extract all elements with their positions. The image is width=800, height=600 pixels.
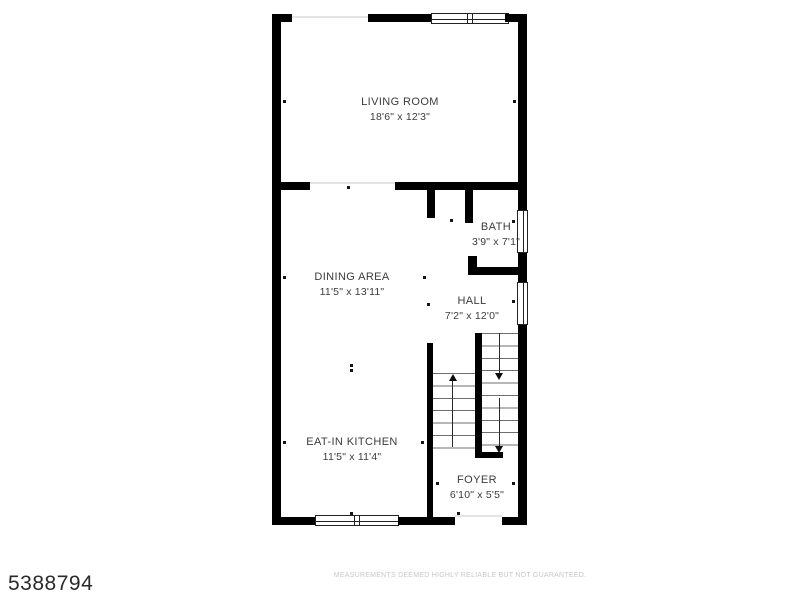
wall-bottom-mid	[398, 517, 455, 525]
wall-hall-corridor-stub	[427, 190, 435, 218]
window-pane-line	[316, 521, 398, 522]
wall-bath-bottom	[468, 267, 520, 275]
measure-tick	[423, 276, 426, 279]
window-pane-line	[523, 283, 524, 324]
window-living-room	[431, 13, 509, 24]
wall-exterior-left	[272, 14, 281, 525]
measure-tick	[283, 441, 286, 444]
room-separator-mark	[350, 364, 353, 367]
measure-tick	[283, 276, 286, 279]
wall-stairs-center	[475, 333, 482, 457]
room-dimensions: 6'10" x 5'5"	[450, 488, 504, 502]
measure-tick	[457, 512, 460, 515]
measure-tick	[513, 100, 516, 103]
room-label-living-room: LIVING ROOM 18'6" x 12'3"	[361, 95, 439, 124]
room-name: FOYER	[450, 473, 504, 487]
room-dimensions: 11'5" x 11'4"	[306, 450, 398, 464]
measure-tick	[421, 441, 424, 444]
mls-number: 5388794	[8, 572, 93, 596]
room-label-eat-in-kitchen: EAT-IN KITCHEN 11'5" x 11'4"	[306, 435, 398, 464]
room-dimensions: 7'2" x 12'0"	[445, 309, 499, 323]
wall-bottom-corner-right	[502, 517, 527, 525]
room-name: BATH	[472, 220, 520, 234]
room-name: LIVING ROOM	[361, 95, 439, 109]
room-dimensions: 18'6" x 12'3"	[361, 110, 439, 124]
room-label-bath: BATH 3'9" x 7'1"	[472, 220, 520, 249]
room-label-dining-area: DINING AREA 11'5" x 13'11"	[314, 270, 389, 299]
window-divider	[467, 14, 468, 23]
room-dimensions: 3'9" x 7'1"	[472, 235, 520, 249]
stairs-down-treads	[482, 333, 518, 454]
window-divider	[472, 14, 473, 23]
measure-tick	[450, 219, 453, 222]
room-dimensions: 11'5" x 13'11"	[314, 285, 389, 299]
window-pane-line	[523, 211, 524, 252]
floorplan-canvas: LIVING ROOM 18'6" x 12'3" BATH 3'9" x 7'…	[0, 0, 800, 600]
stairs-down-arrow-icon	[495, 446, 503, 453]
wall-top-mid	[368, 14, 433, 22]
room-label-hall: HALL 7'2" x 12'0"	[445, 294, 499, 323]
wall-top-corner-left	[272, 14, 292, 22]
measure-tick	[436, 482, 439, 485]
opening-top-left	[292, 16, 368, 18]
opening-living-dining	[310, 182, 395, 184]
measure-tick	[350, 512, 353, 515]
wall-living-dining-left	[281, 182, 310, 190]
stairs-up-treads	[433, 373, 475, 450]
measure-tick	[427, 303, 430, 306]
stairs-down-line-upper	[499, 333, 500, 373]
window-pane-line	[432, 19, 508, 20]
room-name: DINING AREA	[314, 270, 389, 284]
wall-bath-left-upper	[465, 190, 473, 223]
front-door-opening	[455, 515, 502, 517]
stairs-down-line-lower	[499, 398, 500, 446]
stairs-down-arrow-icon	[495, 373, 503, 380]
stairs-up-arrow-icon	[449, 374, 457, 381]
measure-tick	[283, 100, 286, 103]
room-label-foyer: FOYER 6'10" x 5'5"	[450, 473, 504, 502]
measure-tick	[512, 300, 515, 303]
measure-tick	[347, 186, 350, 189]
window-divider	[359, 516, 360, 525]
stairs-up-line	[452, 381, 453, 447]
window-kitchen	[315, 515, 399, 526]
window-hall	[517, 282, 528, 325]
wall-living-dining-right	[395, 182, 519, 190]
room-name: HALL	[445, 294, 499, 308]
room-name: EAT-IN KITCHEN	[306, 435, 398, 449]
measure-tick	[512, 482, 515, 485]
wall-bottom-left	[272, 517, 317, 525]
window-divider	[354, 516, 355, 525]
disclaimer-text: MEASUREMENTS DEEMED HIGHLY RELIABLE BUT …	[334, 572, 586, 579]
room-separator-mark	[350, 369, 353, 372]
